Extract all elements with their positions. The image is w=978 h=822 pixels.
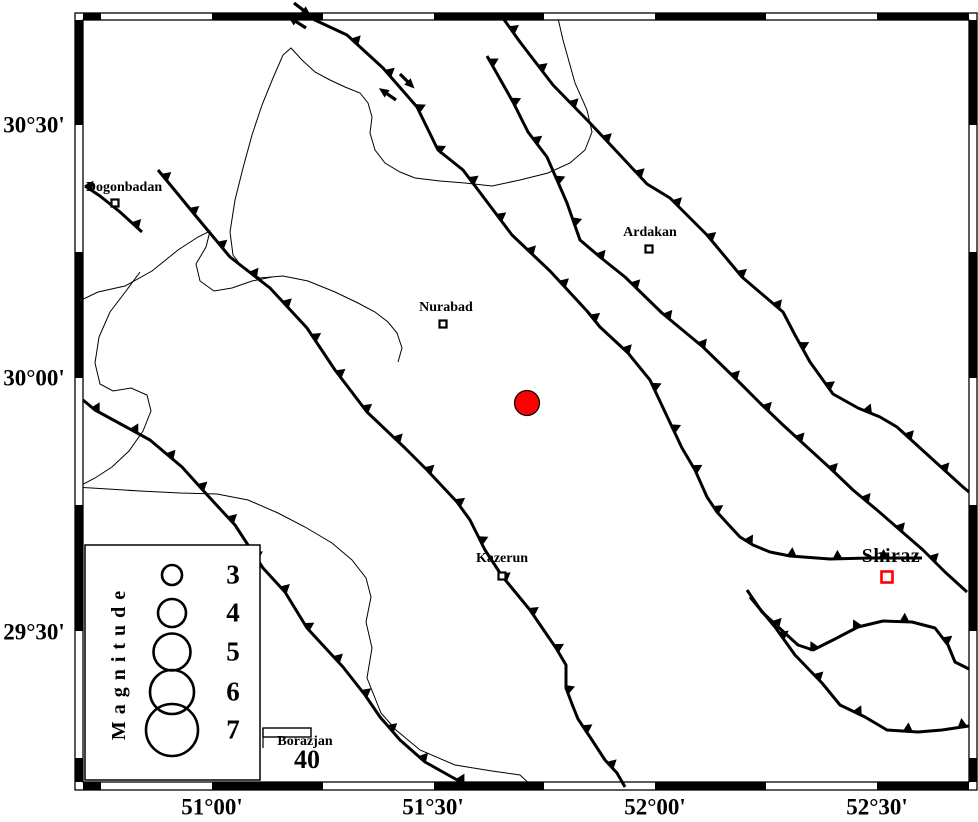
city-label-kazerun: Kazerun xyxy=(476,552,528,566)
lat-tick-label-30-30: 30°30' xyxy=(3,114,65,137)
legend-magnitude-4: 4 xyxy=(226,600,240,627)
city-marker-shiraz xyxy=(882,572,893,583)
city-label-dogonbadan: Dogonbadan xyxy=(86,181,162,195)
legend-magnitude-3: 3 xyxy=(226,562,240,589)
frame-band-left xyxy=(75,125,83,252)
frame-band-top xyxy=(434,13,544,20)
frame-band-right xyxy=(969,378,977,505)
frame-band-top xyxy=(323,13,434,20)
lat-tick-label-29-30: 29°30' xyxy=(3,621,65,644)
frame-band-bottom xyxy=(83,782,101,790)
frame-band-left xyxy=(75,20,83,125)
lon-tick-label-52-00: 52°00' xyxy=(624,796,686,819)
frame-band-left xyxy=(75,252,83,378)
map-canvas xyxy=(0,0,978,822)
frame-band-right xyxy=(969,125,977,252)
frame-band-left xyxy=(75,505,83,631)
frame-band-top xyxy=(101,13,212,20)
frame-band-top xyxy=(766,13,877,20)
city-label-nurabad: Nurabad xyxy=(419,301,473,315)
frame-band-left xyxy=(75,631,83,758)
frame-band-bottom xyxy=(655,782,766,790)
frame-band-top xyxy=(544,13,655,20)
lon-tick-label-52-30: 52°30' xyxy=(846,796,908,819)
frame-corner xyxy=(969,13,977,20)
lon-tick-label-51-30: 51°30' xyxy=(402,796,464,819)
legend-title-magnitude: Magnitude xyxy=(109,584,129,740)
frame-corner xyxy=(75,13,83,20)
frame-band-bottom xyxy=(101,782,212,790)
frame-band-bottom xyxy=(323,782,434,790)
lat-tick-label-30-00: 30°00' xyxy=(3,367,65,390)
frame-band-bottom xyxy=(434,782,544,790)
legend-magnitude-5: 5 xyxy=(226,639,240,666)
legend-magnitude-7: 7 xyxy=(226,717,240,744)
epicenter-dot xyxy=(515,391,540,416)
city-marker-ardakan xyxy=(646,246,653,253)
city-marker-kazerun xyxy=(499,573,506,580)
scale-bar-label: 40 xyxy=(294,747,320,773)
city-marker-dogonbadan xyxy=(112,200,119,207)
frame-band-right xyxy=(969,252,977,378)
legend-magnitude-6: 6 xyxy=(226,679,240,706)
city-label-shiraz: Shiraz xyxy=(862,546,921,566)
frame-band-right xyxy=(969,758,977,782)
frame-band-top xyxy=(877,13,969,20)
frame-band-bottom xyxy=(766,782,877,790)
city-marker-nurabad xyxy=(440,321,447,328)
frame-band-top xyxy=(655,13,766,20)
frame-band-bottom xyxy=(212,782,323,790)
frame-corner xyxy=(969,782,977,790)
frame-corner xyxy=(75,782,83,790)
seismotectonic-map-figure: 30°30' 30°00' 29°30' 51°00' 51°30' 52°00… xyxy=(0,0,978,822)
frame-band-left xyxy=(75,758,83,782)
frame-band-right xyxy=(969,20,977,125)
lon-tick-label-51-00: 51°00' xyxy=(181,796,243,819)
frame-band-bottom xyxy=(877,782,969,790)
city-label-ardakan: Ardakan xyxy=(623,226,677,240)
frame-band-bottom xyxy=(544,782,655,790)
frame-band-left xyxy=(75,378,83,505)
frame-band-right xyxy=(969,505,977,631)
frame-band-right xyxy=(969,631,977,758)
frame-band-top xyxy=(83,13,101,20)
